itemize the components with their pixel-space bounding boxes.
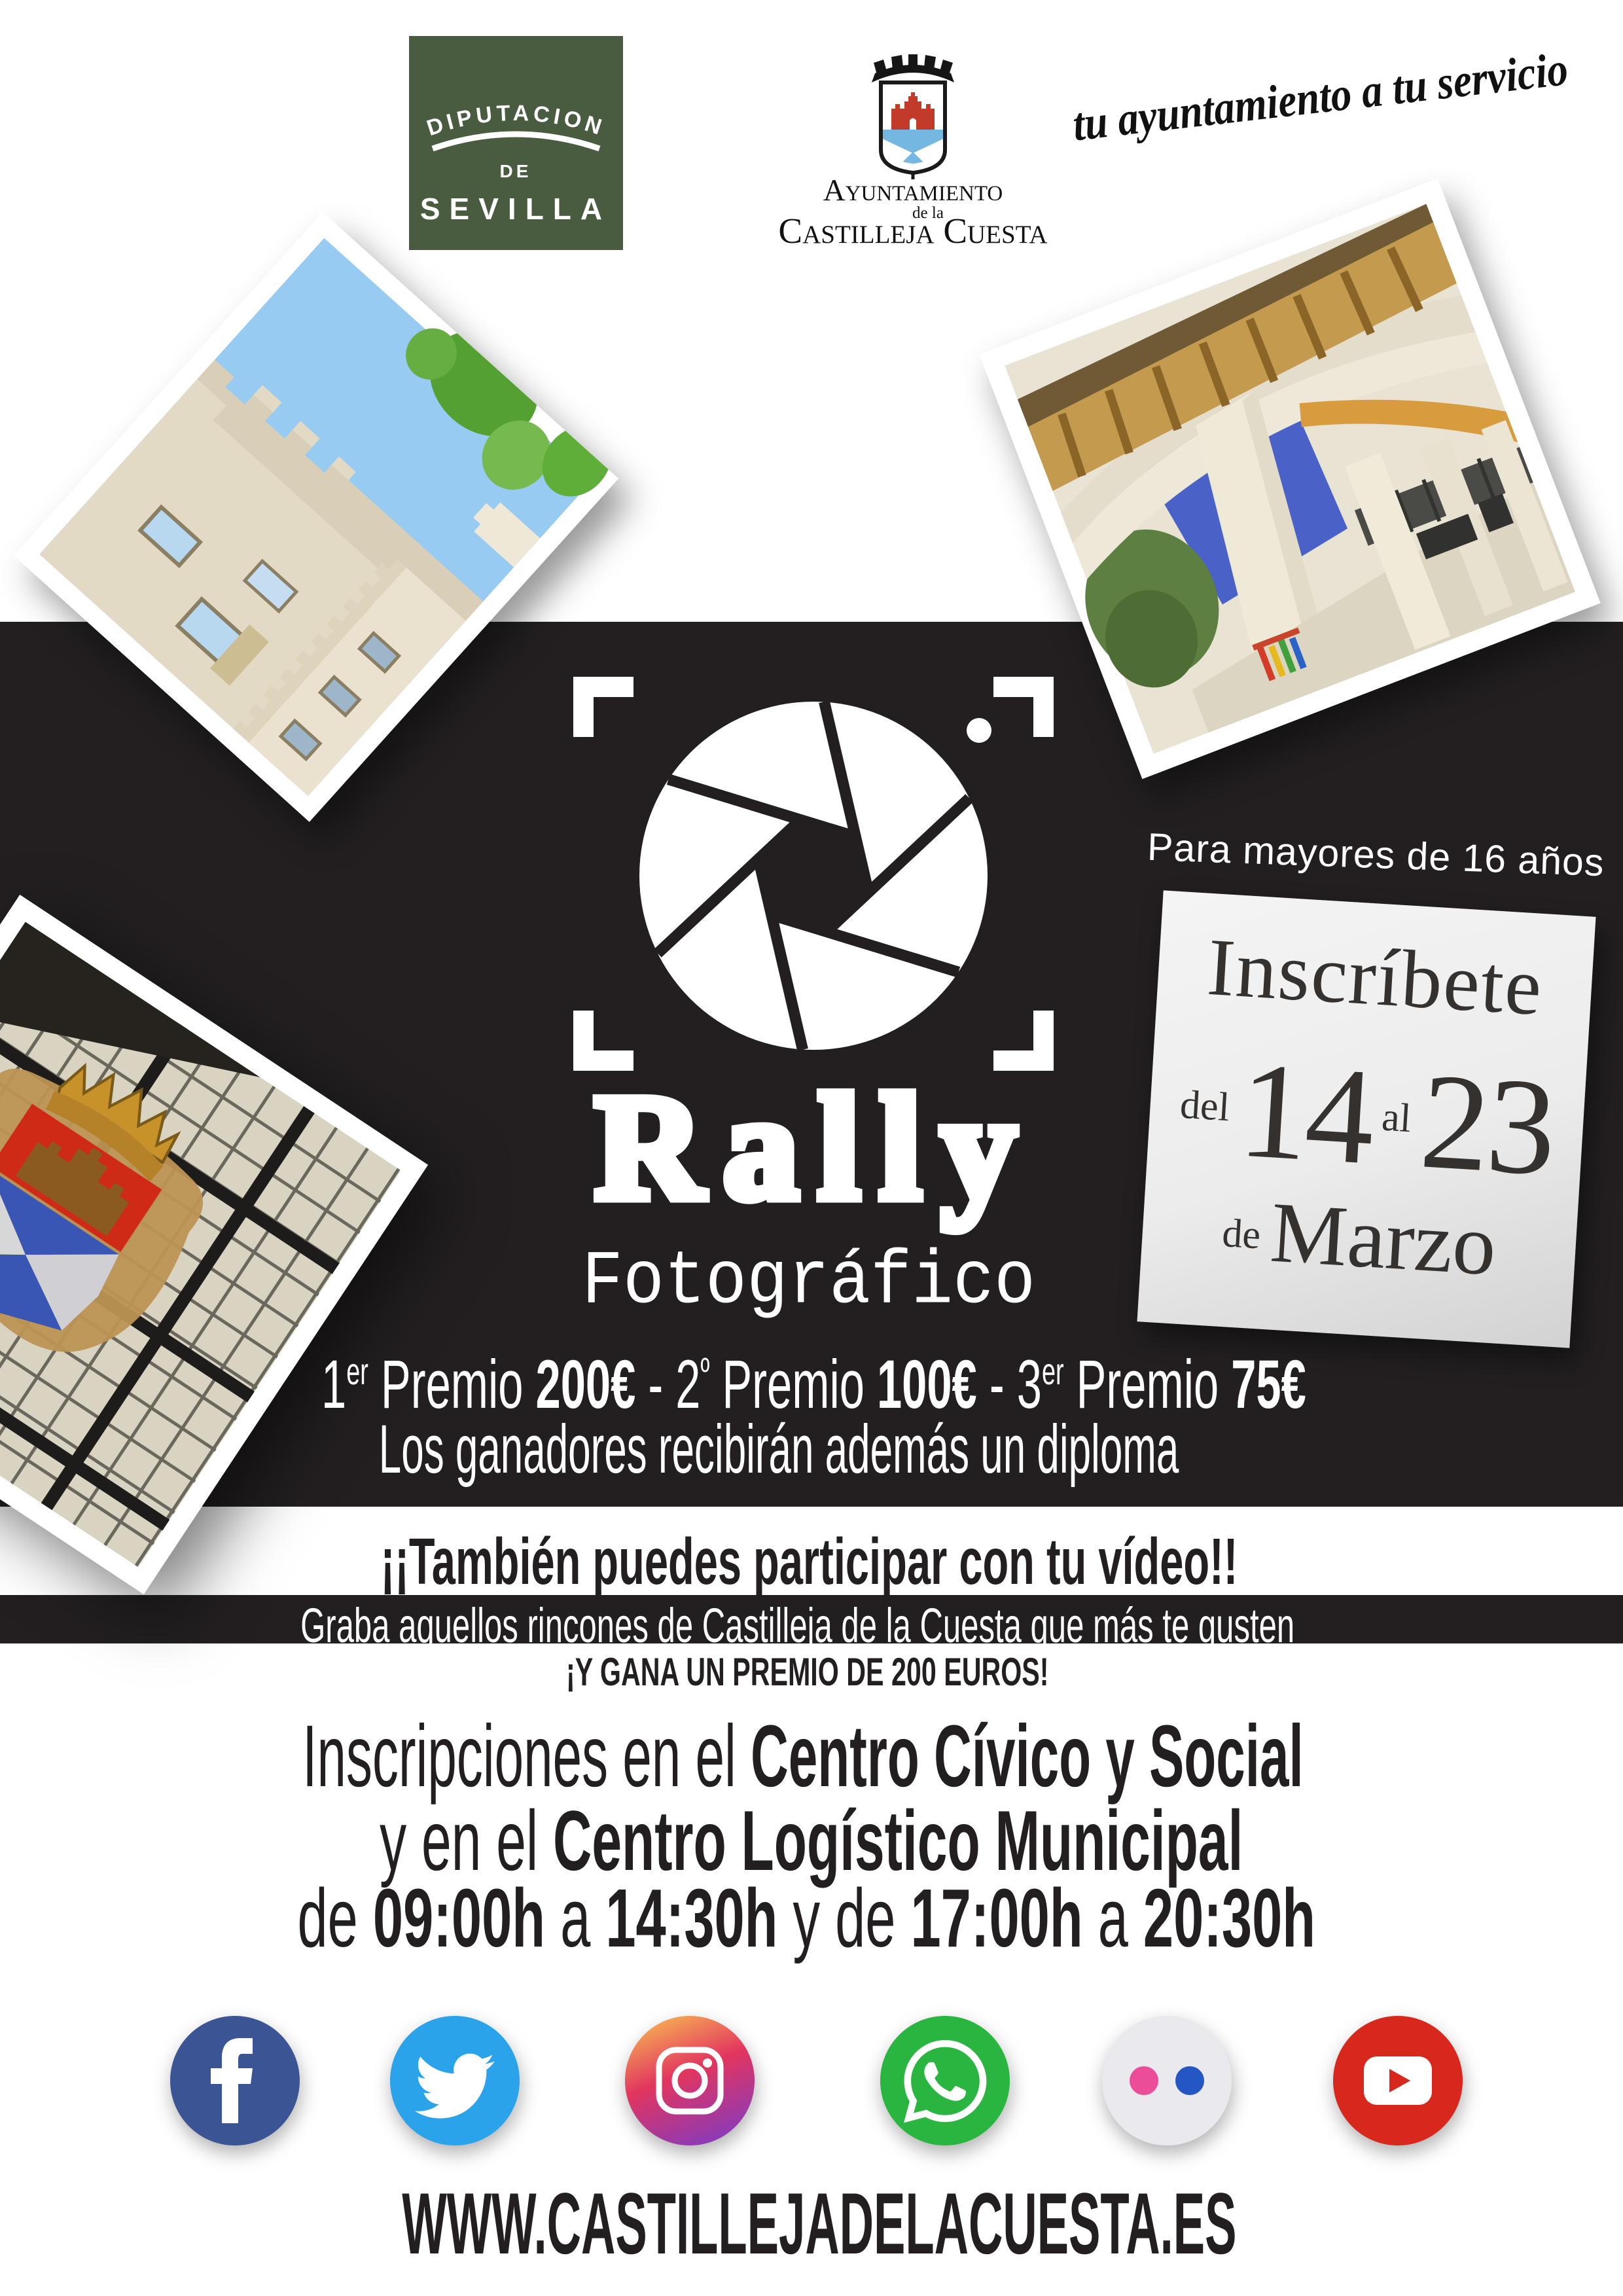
svg-text:Castilleja Cuesta: Castilleja Cuesta <box>778 211 1047 251</box>
svg-text:DE: DE <box>500 161 532 181</box>
svg-text:SEVILLA: SEVILLA <box>420 192 611 226</box>
svg-text:Ayuntamiento: Ayuntamiento <box>823 173 1003 207</box>
